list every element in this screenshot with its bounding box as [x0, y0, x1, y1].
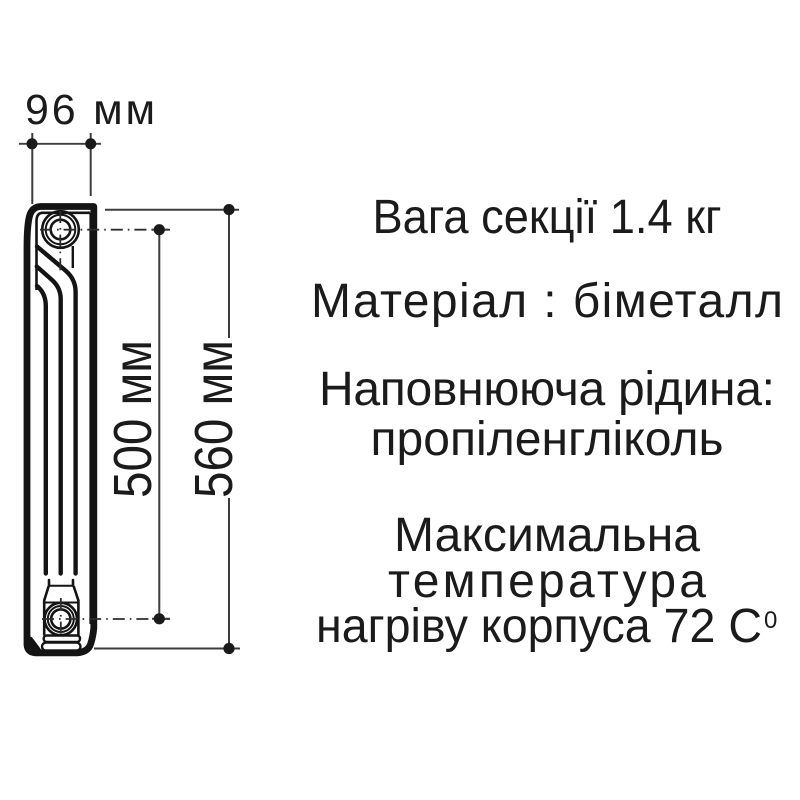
svg-text:Наповнююча рідина:: Наповнююча рідина: [319, 363, 775, 416]
svg-text:Матеріал : біметалл: Матеріал : біметалл [311, 275, 783, 328]
svg-text:96 мм: 96 мм [25, 86, 155, 134]
svg-text:500 мм: 500 мм [103, 340, 163, 498]
svg-text:пропіленгліколь: пропіленгліколь [371, 413, 724, 466]
svg-text:Вага секції 1.4 кг: Вага секції 1.4 кг [373, 191, 722, 244]
svg-text:нагріву корпуса 72 С: нагріву корпуса 72 С [316, 600, 762, 653]
svg-text:560 мм: 560 мм [184, 340, 244, 498]
svg-text:0: 0 [764, 607, 777, 634]
